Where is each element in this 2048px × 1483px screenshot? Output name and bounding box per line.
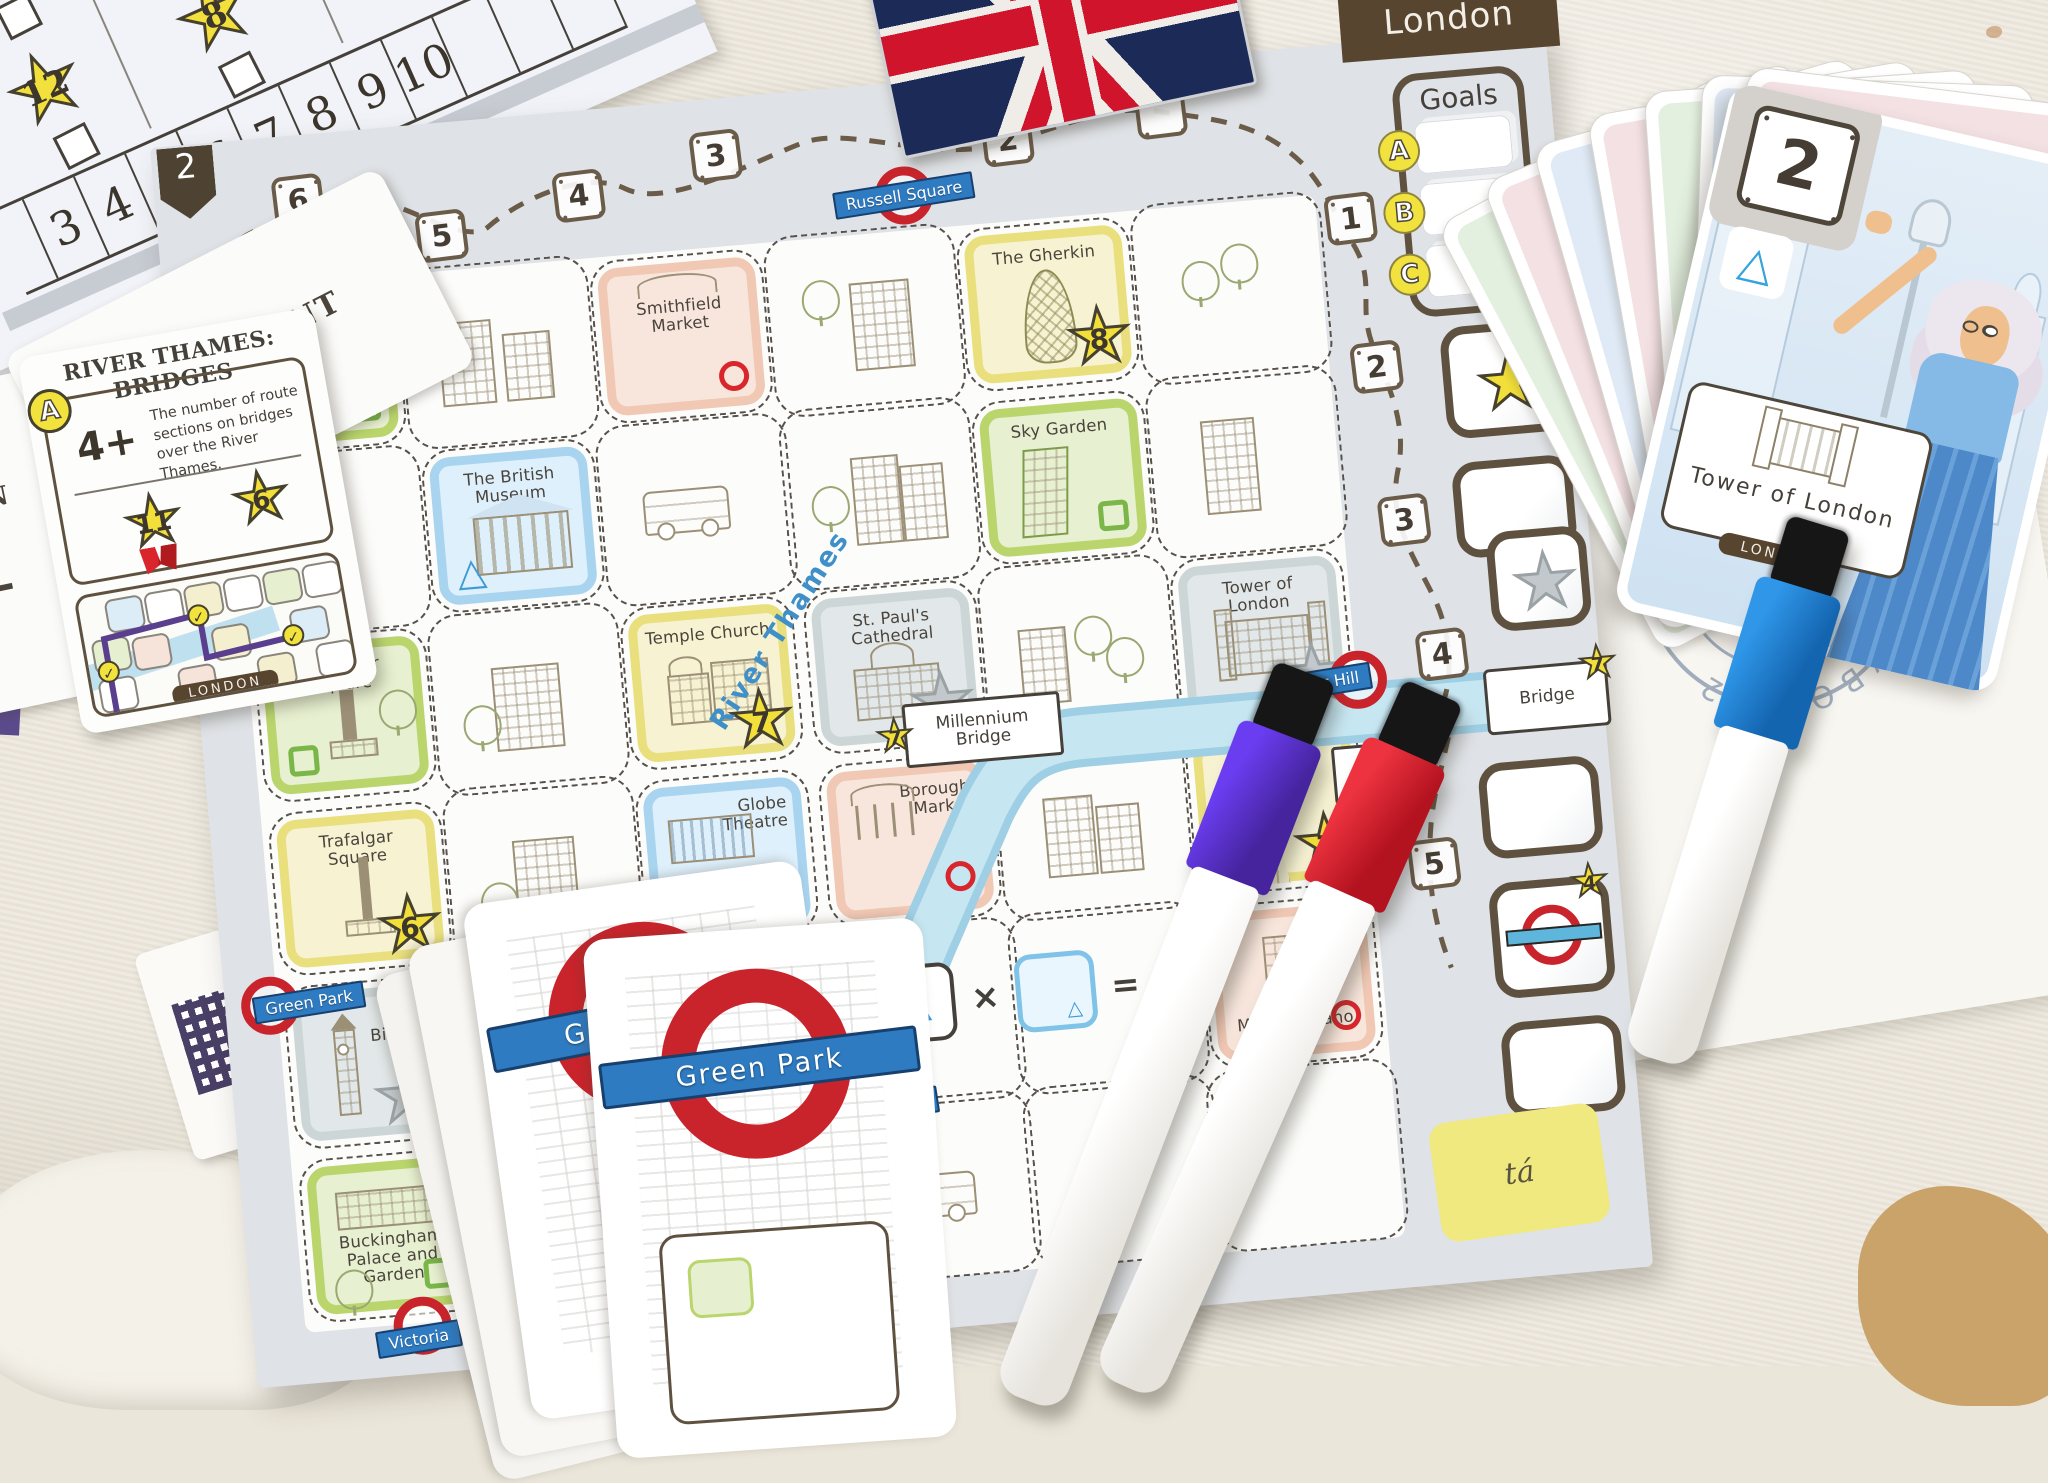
district-preview-slot [658, 1220, 901, 1426]
route-number: 2 [1349, 339, 1405, 395]
green-square-token [1097, 499, 1130, 532]
tower-of-london-icon [1763, 416, 1848, 480]
gray-star-icon: ★ [1506, 545, 1584, 619]
millennium-bridge-label: MillenniumBridge ★ 7 [901, 691, 1064, 769]
museum-icon [473, 510, 574, 576]
district-houses [1161, 381, 1331, 542]
district-sky-garden: Sky Garden [978, 397, 1148, 558]
monument-icon [339, 689, 357, 740]
big-ben-icon [333, 1029, 362, 1117]
goal-box-bridge: Bridge ★ 7 [1483, 659, 1612, 736]
goal-box-empty [1477, 754, 1605, 860]
station-russell-square: Russell Square [873, 164, 936, 227]
district-houses [1008, 744, 1178, 905]
red-circle-token [718, 360, 751, 393]
green-district-icon [687, 1257, 755, 1319]
sky-garden-icon [1022, 446, 1068, 538]
station-green-park: Green Park [239, 974, 302, 1037]
city-tab: London [1337, 0, 1560, 63]
district-trees [1146, 208, 1316, 369]
illustrated-woman [1830, 244, 1940, 338]
route-number: 1 [1323, 191, 1379, 247]
district-trafalgar-square: Trafalgar Square ★6 [275, 808, 445, 969]
bus-icon [642, 485, 732, 536]
star-token: ★8 [1060, 300, 1138, 374]
blue-triangle-token: △ [456, 551, 488, 591]
goal-slot [1414, 114, 1514, 174]
district-bus [611, 429, 781, 590]
green-square-token [288, 745, 321, 778]
district-the-gherkin: The Gherkin ★8 [963, 224, 1133, 385]
formula-district-box: △ [1012, 949, 1098, 1034]
reward-star-first: ★11 [116, 485, 192, 558]
tabletop-scene: → → ★ 6 ★ 12 ★ 8 3 4 5 6 [0, 0, 2048, 1366]
table-edge [1858, 1186, 2048, 1406]
station-victoria: Victoria [391, 1294, 454, 1357]
board-number-badge: 2 [156, 145, 218, 222]
globe-theatre-icon [668, 813, 756, 864]
route-number: 4 [551, 168, 607, 224]
route-number: 3 [1376, 492, 1432, 548]
district-british-museum: The British Museum △ [428, 445, 598, 606]
district-smithfield-market: Smithfield Market [596, 256, 766, 417]
route-number: 3 [688, 128, 744, 184]
threshold: 4+ [73, 417, 141, 473]
red-circle-token [944, 860, 977, 893]
station-card-green-park: Green Park [582, 917, 957, 1459]
route-number: 5 [1406, 836, 1462, 892]
times-sign: × [970, 976, 1002, 1018]
crumb [1986, 26, 2002, 38]
goal-box-empty [1499, 1013, 1627, 1119]
reward-star-second: ★6 [223, 462, 299, 535]
route-number: 4 [1414, 626, 1470, 682]
corner-score-box: tá [1427, 1101, 1612, 1243]
column-icon [358, 857, 373, 920]
goal-box-station: ★ 4 [1487, 874, 1617, 1000]
district-trees [780, 240, 950, 401]
district-borough-market: Borough Market [825, 760, 995, 921]
district-houses [443, 619, 613, 780]
goal-box-gray-star: ★ [1485, 524, 1593, 632]
goals-title: Goals [1398, 76, 1518, 119]
